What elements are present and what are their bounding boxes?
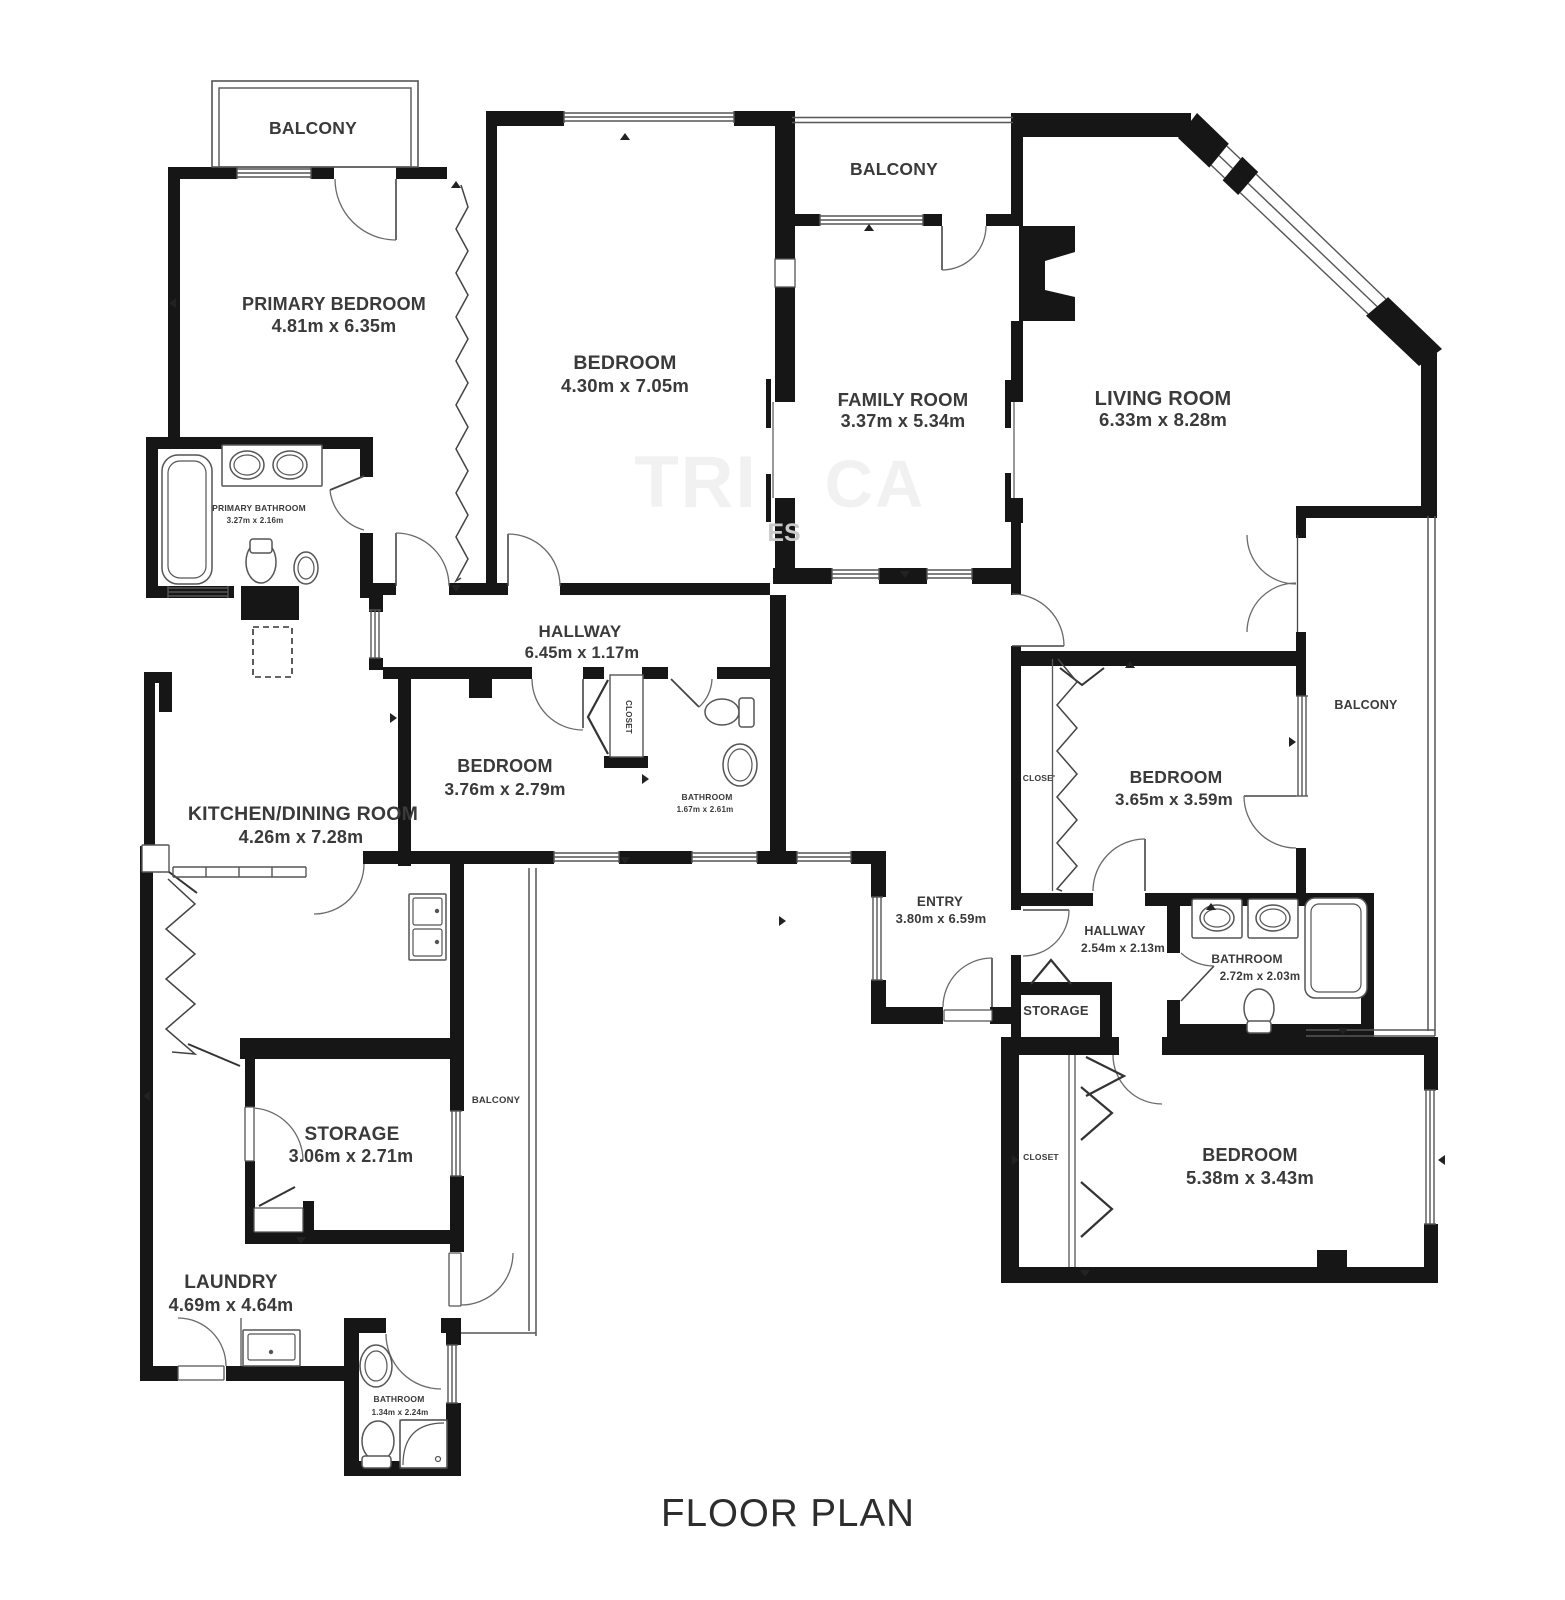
svg-text:STORAGE: STORAGE: [1023, 1003, 1089, 1018]
svg-text:3.06m x 2.71m: 3.06m x 2.71m: [289, 1146, 414, 1166]
svg-text:BALCONY: BALCONY: [850, 159, 938, 179]
svg-text:FLOOR PLAN: FLOOR PLAN: [661, 1492, 915, 1535]
svg-text:2.54m x 2.13m: 2.54m x 2.13m: [1081, 941, 1165, 955]
svg-text:6.45m x 1.17m: 6.45m x 1.17m: [525, 644, 640, 662]
svg-text:BEDROOM: BEDROOM: [1130, 767, 1223, 787]
svg-text:PRIMARY BATHROOM: PRIMARY BATHROOM: [212, 503, 306, 513]
svg-text:LAUNDRY: LAUNDRY: [184, 1272, 278, 1293]
svg-text:HALLWAY: HALLWAY: [1084, 924, 1146, 938]
svg-text:3.27m x 2.16m: 3.27m x 2.16m: [227, 516, 284, 525]
svg-text:BEDROOM: BEDROOM: [1202, 1145, 1297, 1165]
svg-text:1.34m x 2.24m: 1.34m x 2.24m: [372, 1408, 429, 1417]
svg-text:ES: ES: [767, 519, 800, 547]
svg-text:4.26m x 7.28m: 4.26m x 7.28m: [239, 827, 364, 847]
svg-text:BEDROOM: BEDROOM: [573, 352, 676, 374]
svg-text:CLOSET: CLOSET: [624, 700, 633, 734]
svg-text:KITCHEN/DINING ROOM: KITCHEN/DINING ROOM: [188, 803, 418, 825]
svg-text:2.72m x 2.03m: 2.72m x 2.03m: [1220, 971, 1301, 983]
svg-text:3.76m x 2.79m: 3.76m x 2.79m: [444, 779, 565, 799]
svg-text:6.33m x 8.28m: 6.33m x 8.28m: [1099, 409, 1227, 430]
svg-text:CLOSE': CLOSE': [1023, 773, 1056, 783]
svg-text:CLOSET: CLOSET: [1023, 1152, 1059, 1162]
svg-text:STORAGE: STORAGE: [304, 1124, 399, 1145]
svg-text:TRI: TRI: [634, 442, 758, 523]
svg-text:CA: CA: [825, 447, 926, 522]
svg-text:BATHROOM: BATHROOM: [373, 1394, 424, 1404]
svg-text:4.69m x 4.64m: 4.69m x 4.64m: [169, 1295, 294, 1315]
svg-text:BEDROOM: BEDROOM: [457, 756, 552, 776]
svg-text:BATHROOM: BATHROOM: [681, 792, 732, 802]
svg-text:BATHROOM: BATHROOM: [1211, 952, 1282, 966]
svg-text:BALCONY: BALCONY: [1334, 698, 1398, 712]
svg-text:ENTRY: ENTRY: [917, 894, 963, 909]
svg-text:3.65m x 3.59m: 3.65m x 3.59m: [1115, 790, 1233, 809]
svg-text:3.80m x 6.59m: 3.80m x 6.59m: [896, 911, 987, 926]
svg-text:PRIMARY BEDROOM: PRIMARY BEDROOM: [242, 294, 426, 314]
svg-text:BALCONY: BALCONY: [472, 1095, 521, 1106]
svg-text:BALCONY: BALCONY: [269, 118, 357, 138]
svg-text:5.38m x 3.43m: 5.38m x 3.43m: [1186, 1167, 1314, 1188]
svg-text:4.30m x 7.05m: 4.30m x 7.05m: [561, 375, 689, 396]
svg-text:FAMILY ROOM: FAMILY ROOM: [838, 389, 969, 410]
svg-text:3.37m x 5.34m: 3.37m x 5.34m: [841, 411, 966, 431]
svg-text:4.81m x 6.35m: 4.81m x 6.35m: [272, 316, 397, 336]
svg-text:1.67m x 2.61m: 1.67m x 2.61m: [677, 805, 734, 814]
svg-text:LIVING ROOM: LIVING ROOM: [1095, 388, 1232, 410]
svg-text:HALLWAY: HALLWAY: [539, 622, 622, 641]
